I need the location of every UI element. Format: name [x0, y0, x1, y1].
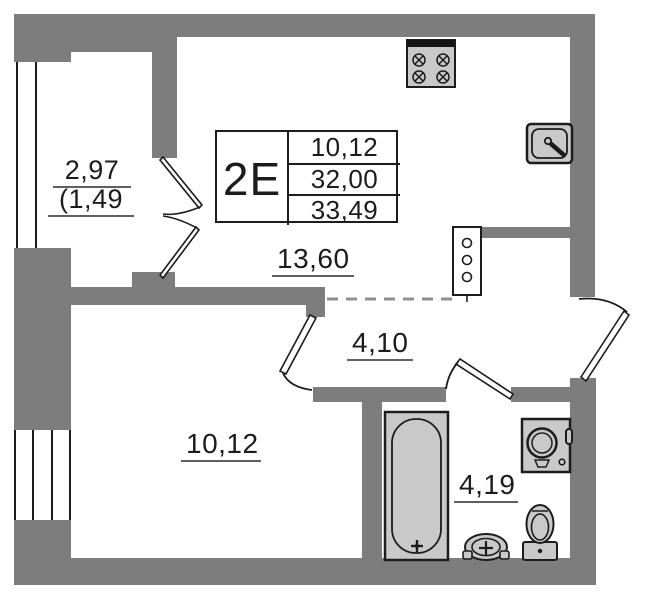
hall-area-label: 4,10 [347, 328, 413, 361]
bathroom-area-value: 4,19 [454, 470, 518, 503]
bedroom-area-label: 10,12 [181, 429, 261, 462]
floor-plan: 2,97 (1,49 13,60 4,10 10,12 4,19 2E 10,1… [0, 0, 647, 600]
unit-type-label: 2E [217, 132, 289, 225]
balcony-window-icon [17, 62, 36, 248]
balcony-coeff-value: (1,49 [48, 185, 134, 217]
balcony-coeff-label: (1,49 [48, 185, 134, 217]
bedroom-window-icon [15, 430, 70, 520]
balcony-door-icon [160, 157, 202, 278]
bedroom-area-value: 10,12 [181, 429, 261, 462]
kitchen-sink-icon [527, 124, 572, 163]
kitchen-living-area-value: 13,60 [272, 244, 354, 277]
kitchen-living-area-label: 13,60 [272, 244, 354, 277]
bathroom-sink-icon [463, 534, 509, 560]
entrance-door-icon [579, 299, 629, 381]
bathroom-area-label: 4,19 [454, 470, 518, 503]
stove-icon [407, 40, 455, 87]
bathtub-icon [385, 412, 448, 560]
bathroom-door-icon [446, 359, 513, 399]
unit-title-block: 2E 10,12 32,00 33,49 [215, 130, 398, 223]
vent-shaft-icon [453, 227, 481, 302]
room-door-icon [280, 315, 316, 390]
unit-room-area: 10,12 [289, 132, 400, 163]
washing-machine-icon [522, 419, 572, 472]
unit-living-area: 32,00 [289, 163, 400, 194]
floor-plan-drawing [0, 0, 647, 600]
hall-area-value: 4,10 [347, 328, 413, 361]
toilet-icon [523, 505, 557, 560]
unit-total-area: 33,49 [289, 194, 400, 225]
